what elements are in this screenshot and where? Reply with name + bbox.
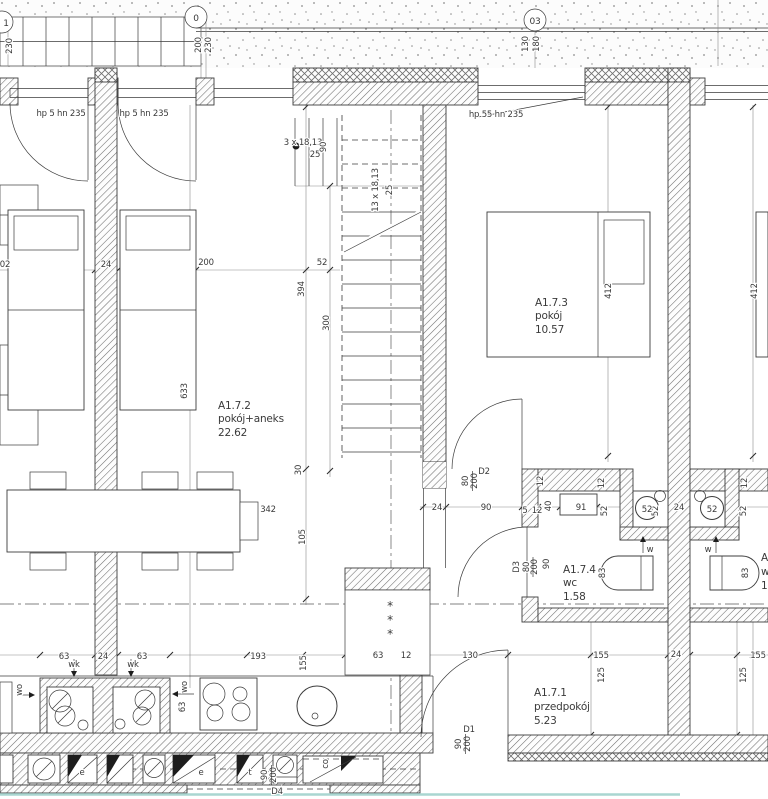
chair xyxy=(240,502,258,540)
room-area-clipped: 1.58 xyxy=(761,580,768,592)
sink-size-label: 52 xyxy=(642,505,652,515)
insulation-bottom xyxy=(508,753,768,761)
grid-bubble-label: 0 xyxy=(193,14,199,24)
door-id: D1 xyxy=(463,725,475,735)
room-area: 10.57 xyxy=(535,324,564,336)
door-dim: 200 xyxy=(470,473,480,489)
party-wall-right xyxy=(668,68,690,740)
stair-break-line xyxy=(344,212,421,252)
stair-upper-treads xyxy=(342,140,421,188)
dim-label: 52 xyxy=(739,506,749,516)
door-dim: 200 xyxy=(269,767,279,783)
door-dim: 200 xyxy=(463,736,473,752)
stair-jamb-hatch xyxy=(423,462,446,488)
meter-box-t-left-unit xyxy=(107,755,133,783)
dining-table xyxy=(7,472,258,570)
shaft-label: wk xyxy=(68,660,80,670)
wall-pier-far-right xyxy=(690,78,705,105)
party-wall-left xyxy=(95,68,117,675)
dim-label: 12 xyxy=(401,651,411,661)
dim-label: 24 xyxy=(671,650,681,660)
chair xyxy=(197,472,233,489)
dim-label: 63 xyxy=(178,702,188,712)
counter-left-unit xyxy=(0,682,12,733)
exterior-wall-top-right xyxy=(585,82,668,105)
dim-label: 83 xyxy=(598,568,608,578)
dim-label: 155 xyxy=(593,651,609,661)
meter-label: e xyxy=(79,768,84,778)
meter-box-vent-2 xyxy=(143,755,165,783)
shaft-label: wk xyxy=(127,660,139,670)
dim-label: 200 xyxy=(198,258,214,268)
dim-label: 155 xyxy=(299,655,309,671)
door-id: D4 xyxy=(271,787,283,797)
room-name-clipped: wc xyxy=(761,566,768,578)
right-unit-window-frame xyxy=(705,86,768,100)
wc-door-stub xyxy=(522,597,538,622)
chair xyxy=(30,472,66,489)
dim-label: 300 xyxy=(322,315,332,331)
meter-box-vent xyxy=(28,755,60,783)
dim-label: 394 xyxy=(297,281,307,297)
dim-label: 12 xyxy=(597,478,607,488)
window-label: hp 5 hn 235 xyxy=(36,109,85,119)
dim-label: 130 xyxy=(462,651,478,661)
dim-label: 412 xyxy=(604,283,614,299)
room-area: 5.23 xyxy=(534,715,557,727)
chair xyxy=(142,553,178,570)
wall-pier-top-left xyxy=(0,78,18,105)
bed-bedroom xyxy=(487,212,650,357)
shaft-label: wo xyxy=(180,681,190,693)
room-name: pokój xyxy=(535,310,562,322)
bed-left-unit xyxy=(8,210,84,410)
toilet xyxy=(601,556,653,590)
dim-label: 105 xyxy=(298,529,308,545)
kitchenette-wall xyxy=(345,568,430,590)
dim-label: 63 xyxy=(373,651,383,661)
room-id: A1.7.3 xyxy=(535,297,568,309)
dim-label: 52 xyxy=(600,506,610,516)
dim-label: 12 xyxy=(536,476,546,486)
stairs xyxy=(293,115,422,458)
door-dim: 200 xyxy=(530,559,540,575)
dim-label: 24 xyxy=(674,503,684,513)
dim-label: 12 xyxy=(740,478,750,488)
dim-label: 230 xyxy=(204,37,214,53)
chair xyxy=(197,553,233,570)
stair-tread-label: 25 xyxy=(385,185,395,195)
stair-width-label: 90 xyxy=(319,142,329,152)
radiator-symbol: * xyxy=(387,613,393,627)
door-swing-d1 xyxy=(421,650,508,737)
wc-south-wall-right-unit xyxy=(690,608,768,622)
dim-label: 633 xyxy=(180,383,190,399)
kitchen-sink xyxy=(297,686,337,726)
dim-label: 193 xyxy=(250,652,266,662)
dim-label: 200 xyxy=(194,37,204,53)
hall-partition-lines xyxy=(424,488,446,568)
dim-label: 52 xyxy=(317,258,327,268)
insulation-top-mid xyxy=(293,68,478,82)
party-wall-right-head xyxy=(668,68,690,82)
room-id: A1.7.1 xyxy=(534,687,567,699)
dim-label: 342 xyxy=(260,505,276,515)
room-name: wc xyxy=(563,577,577,589)
bottom-band-left xyxy=(0,785,187,793)
dim-label: 412 xyxy=(750,283,760,299)
shaft-label: wo xyxy=(15,684,25,696)
wc-niche-bottom-right-unit xyxy=(690,527,739,540)
insulation-top-right xyxy=(585,68,668,82)
wc-south-wall xyxy=(538,608,668,622)
chair xyxy=(142,472,178,489)
exterior-wall-bottom xyxy=(508,735,768,753)
door-swing-d2 xyxy=(452,399,522,469)
meter-label: e xyxy=(198,768,203,778)
door-dim: 90 xyxy=(542,559,552,569)
dim-label: 125 xyxy=(739,667,749,683)
dim-label: 40 xyxy=(544,501,554,511)
room-id: A1.7.2 xyxy=(218,400,251,412)
dim-label: 83 xyxy=(741,568,751,578)
dim-label: 180 xyxy=(532,36,542,52)
cooktop xyxy=(200,678,257,730)
meter-box-wide xyxy=(303,756,383,783)
room-area: 22.62 xyxy=(218,427,247,439)
meter-box xyxy=(0,755,13,783)
stair-east-wall xyxy=(423,105,446,462)
wc-north-wall xyxy=(538,469,620,491)
dim-label: 155 xyxy=(750,651,766,661)
room-area: 1.58 xyxy=(563,591,586,603)
bottom-band-right xyxy=(330,785,420,793)
room-id: A1.7.4 xyxy=(563,564,596,576)
exterior-wall-top-mid xyxy=(293,82,478,105)
dim-label: 5 xyxy=(522,506,527,516)
dim-label: 24 xyxy=(432,503,442,513)
shaft-label: co xyxy=(321,759,331,768)
radiator-symbol: * xyxy=(387,599,393,613)
door-id: D3 xyxy=(512,561,522,573)
bed-living-room xyxy=(120,210,196,410)
dim-label: 90 xyxy=(481,503,491,513)
balcony-door-left-frame xyxy=(10,89,88,98)
room-id-clipped: A1.7.4 xyxy=(761,552,768,564)
sink-size-label: 52 xyxy=(707,505,717,515)
dim-label: 12 xyxy=(532,506,542,516)
stair-window-frame xyxy=(214,89,293,98)
balcony-door-mid-frame xyxy=(118,89,196,98)
dim-label: 130 xyxy=(521,36,531,52)
grid-bubble-label: 03 xyxy=(529,17,540,27)
dim-label: 30 xyxy=(294,465,304,475)
stair-run-label: 3 x 18,13 xyxy=(284,138,322,148)
dim-label: 24 xyxy=(98,652,108,662)
dim-label: 125 xyxy=(597,667,607,683)
shaft-label: w xyxy=(705,545,712,555)
chair xyxy=(30,553,66,570)
toilet-right-unit xyxy=(710,556,759,590)
grid-bubble-label: 1 xyxy=(3,19,9,29)
dim-label: 24 xyxy=(101,260,111,270)
party-wall-left-head xyxy=(95,68,117,82)
floor-plan: 1 0 03 230 200 230 130 180 hp 5 hn 235 h… xyxy=(0,0,768,799)
room-name: pokój+aneks xyxy=(218,413,284,425)
room-name: przedpokój xyxy=(534,701,590,713)
dim-label: 02 xyxy=(0,260,10,270)
shaft-label: w xyxy=(647,545,654,555)
stair-well-edges xyxy=(342,115,421,458)
window-label: hp 5 hn 235 xyxy=(119,109,168,119)
dim-label: 52 xyxy=(651,506,661,516)
bedroom-window-frame xyxy=(478,86,585,100)
window-label: hp 55 hn 235 xyxy=(469,110,523,120)
stair-run-label: 13 x 18,13 xyxy=(371,168,381,212)
radiator-symbol: * xyxy=(387,627,393,641)
dim-label: 91 xyxy=(576,503,586,513)
dim-label: 230 xyxy=(5,38,15,54)
wall-pier-top-right-of-door xyxy=(196,78,214,105)
walls xyxy=(0,68,768,793)
kitchen-back-wall xyxy=(0,733,433,753)
meter-box-e xyxy=(173,755,215,783)
